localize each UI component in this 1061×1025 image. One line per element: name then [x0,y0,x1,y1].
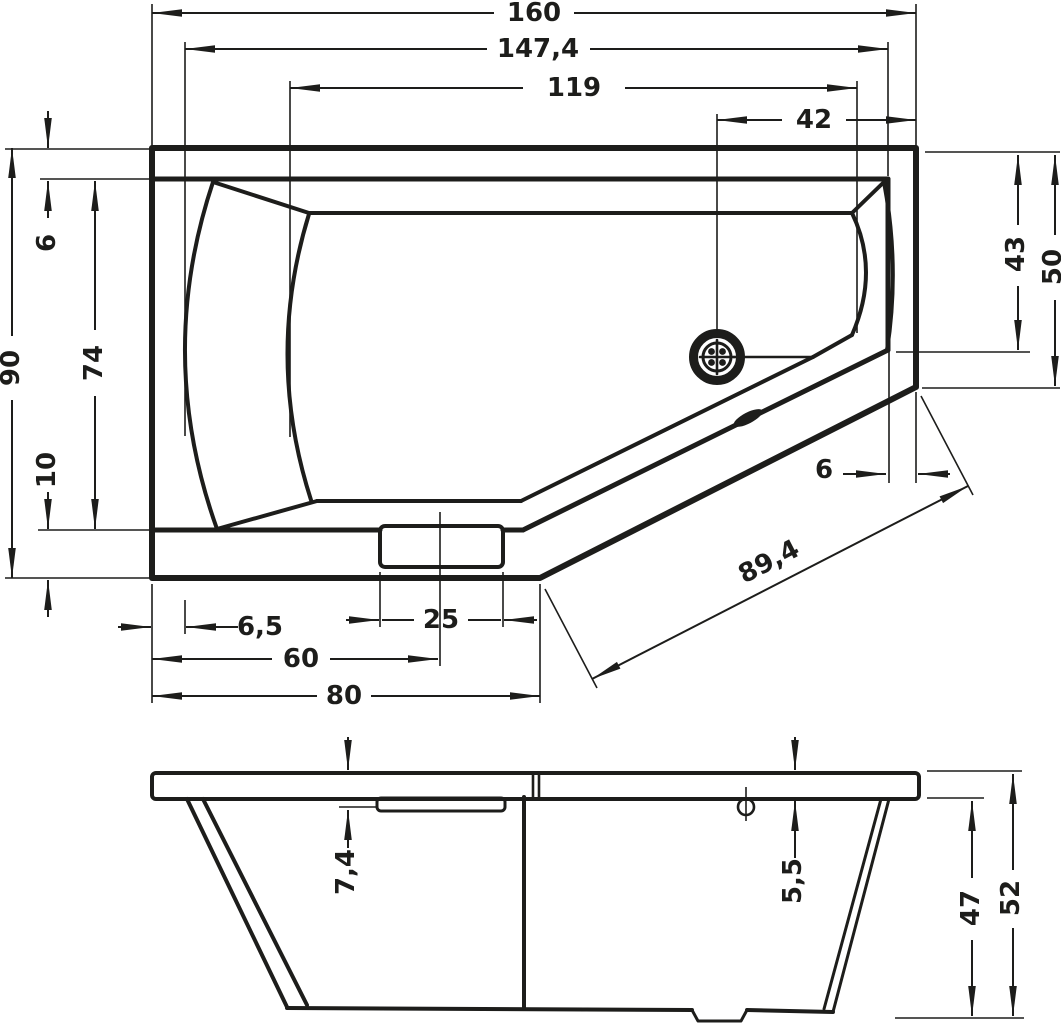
dim-overall-height: 52 [996,774,1026,1016]
dim-label-right-edge: 50 [1038,249,1061,285]
dim-right-edge: 50 [1038,155,1061,386]
dim-label-rim-bottom: 10 [32,452,62,488]
dim-overall-width: 160 [152,0,916,28]
dim-rim-inner-width: 147,4 [185,34,888,64]
dim-rim-thickness: 5,5 [778,737,808,904]
rim-slab [152,773,919,811]
dim-grip-recess-depth: 7,4 [331,737,361,895]
dim-rim-inner-depth: 74 [79,181,109,529]
dim-label-rim-thickness: 5,5 [778,858,808,904]
dim-body-height: 47 [956,801,986,1016]
dim-label-grip-recess-depth: 7,4 [331,849,361,895]
dim-label-right-corner-inner: 43 [1001,236,1031,272]
dim-label-rim-left: 6,5 [237,612,283,642]
dim-right-corner-inner: 43 [1001,155,1031,350]
dim-label-rim-inner-width: 147,4 [497,34,579,64]
drain-outlet [692,1010,747,1021]
dim-label-body-height: 47 [956,890,986,926]
dim-overall-depth: 90 [0,148,26,578]
dim-label-rim-top: 6 [32,234,62,252]
dim-diagonal-rim: 6 [815,455,950,485]
section-extension-lines [339,771,1024,1018]
dim-label-front-edge: 80 [326,681,362,711]
grip-recess [380,512,503,666]
basin-contours [185,182,893,529]
dim-label-grip-center: 60 [283,644,319,674]
section-view: 7,4 5,5 47 52 [152,737,1026,1021]
dim-label-overall-height: 52 [996,880,1026,916]
dim-grip-center: 60 [152,644,438,674]
dim-label-drain-offset: 42 [796,105,832,135]
dim-rim-top: 6 [32,111,62,252]
dim-label-diagonal-edge: 89,4 [734,534,805,590]
drawing-sheet: 160 147,4 119 42 90 6 [0,0,1061,1025]
dim-grip-width: 25 [346,605,537,635]
dim-label-grip-width: 25 [423,605,459,635]
dim-drain-offset: 42 [717,105,916,135]
bathtub-technical-drawing: 160 147,4 119 42 90 6 [0,0,1061,1025]
plan-extension-lines [5,4,1060,703]
dim-label-diagonal-rim: 6 [815,455,833,485]
plan-view: 160 147,4 119 42 90 6 [0,0,1061,711]
jet-fitting-icon [731,406,764,431]
dim-front-edge: 80 [152,681,540,711]
dim-basin-length: 119 [290,73,857,103]
dim-rim-left: 6,5 [118,612,283,642]
dim-diagonal-edge: 89,4 [592,486,968,679]
tub-shell-section [187,797,889,1021]
dim-label-basin-length: 119 [547,73,601,103]
dim-label-overall-depth: 90 [0,350,26,386]
drain-icon [694,334,814,381]
dim-label-overall-width: 160 [507,0,561,28]
dim-label-rim-inner-depth: 74 [79,345,109,381]
dim-rim-bottom: 10 [32,452,62,617]
overflow-icon [738,787,754,821]
